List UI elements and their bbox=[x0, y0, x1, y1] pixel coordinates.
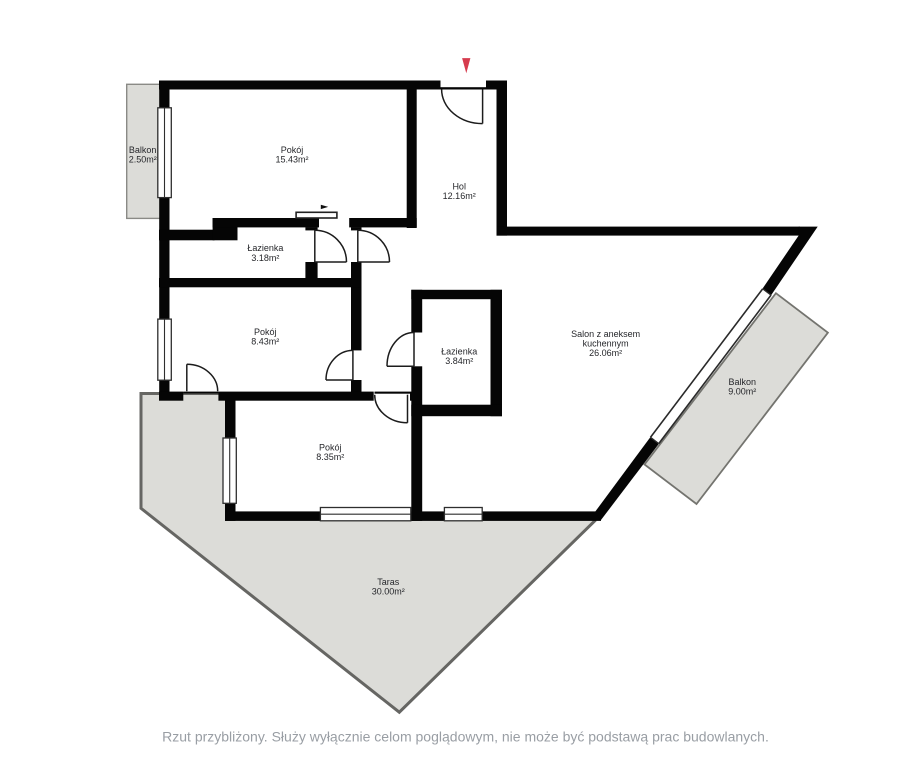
svg-text:Pokój: Pokój bbox=[254, 327, 277, 337]
svg-text:Pokój: Pokój bbox=[281, 145, 304, 155]
svg-text:12.16m²: 12.16m² bbox=[443, 191, 476, 201]
svg-text:3.84m²: 3.84m² bbox=[445, 356, 473, 366]
svg-text:8.35m²: 8.35m² bbox=[316, 452, 344, 462]
svg-text:Łazienka: Łazienka bbox=[441, 347, 477, 357]
svg-text:Hol: Hol bbox=[452, 182, 466, 192]
svg-text:15.43m²: 15.43m² bbox=[275, 154, 308, 164]
svg-text:30.00m²: 30.00m² bbox=[372, 587, 405, 597]
svg-text:Taras: Taras bbox=[377, 577, 400, 587]
svg-text:Rzut przybliżony. Służy wyłącz: Rzut przybliżony. Służy wyłącznie celom … bbox=[162, 729, 769, 745]
svg-text:Salon z aneksem: Salon z aneksem bbox=[571, 329, 640, 339]
svg-text:26.06m²: 26.06m² bbox=[589, 348, 622, 358]
svg-text:Łazienka: Łazienka bbox=[247, 243, 283, 253]
svg-text:Pokój: Pokój bbox=[319, 442, 342, 452]
svg-text:Balkon: Balkon bbox=[729, 377, 757, 387]
svg-text:3.18m²: 3.18m² bbox=[251, 253, 279, 263]
svg-text:Balkon: Balkon bbox=[129, 145, 157, 155]
svg-text:9.00m²: 9.00m² bbox=[728, 387, 756, 397]
svg-text:8.43m²: 8.43m² bbox=[251, 336, 279, 346]
svg-text:2.50m²: 2.50m² bbox=[129, 155, 157, 165]
